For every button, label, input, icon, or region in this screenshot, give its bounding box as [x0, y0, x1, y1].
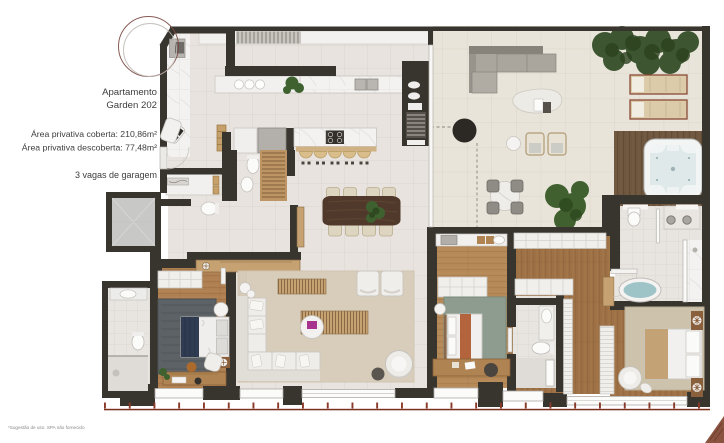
svg-text:3 vagas de garagem: 3 vagas de garagem — [75, 170, 157, 180]
svg-text:Apartamento: Apartamento — [102, 87, 157, 98]
svg-text:*Sugestão de uso. SPA não forn: *Sugestão de uso. SPA não fornecido — [8, 425, 85, 430]
svg-text:Garden 202: Garden 202 — [106, 100, 157, 111]
svg-text:Área privativa coberta: 210,86: Área privativa coberta: 210,86m² — [31, 129, 157, 139]
svg-text:Área privativa descoberta: 77,: Área privativa descoberta: 77,48m² — [22, 143, 157, 153]
